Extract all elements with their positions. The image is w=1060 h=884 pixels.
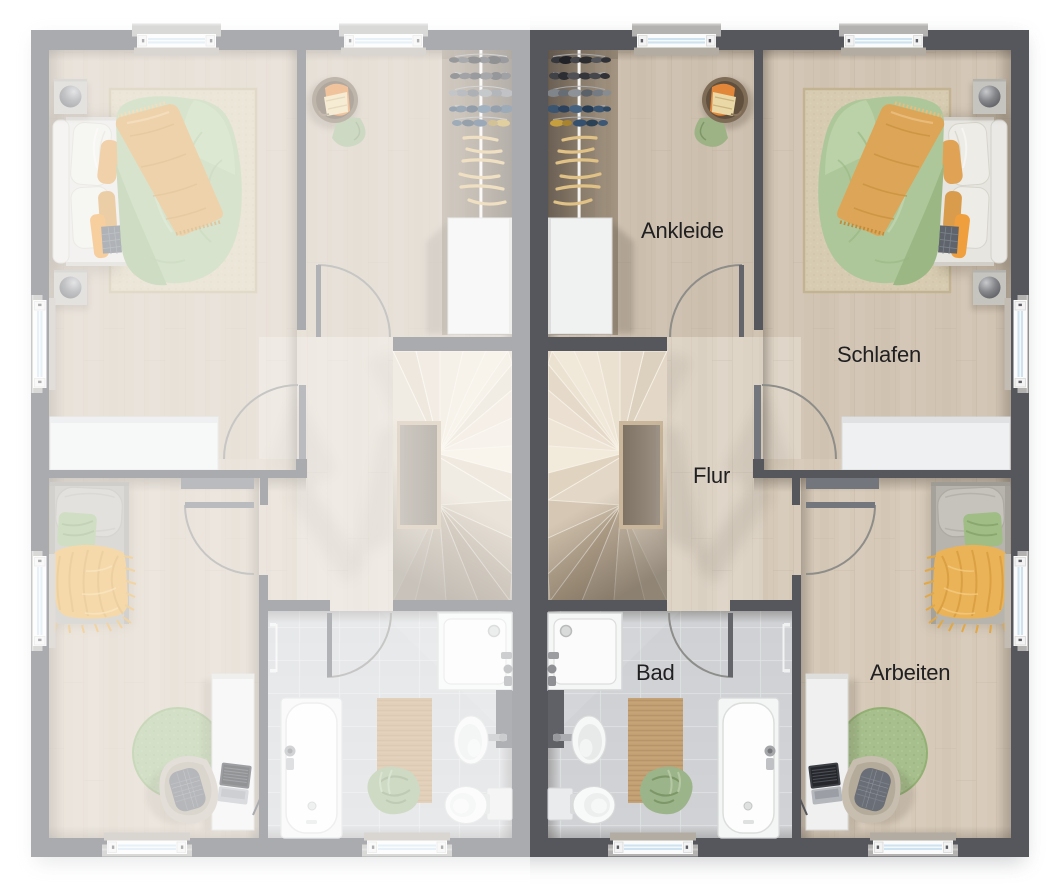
svg-text:Schlafen: Schlafen [837, 342, 921, 367]
svg-text:Arbeiten: Arbeiten [870, 660, 950, 685]
svg-text:Ankleide: Ankleide [641, 218, 724, 243]
svg-text:Flur: Flur [693, 463, 730, 488]
svg-text:Bad: Bad [636, 660, 675, 685]
